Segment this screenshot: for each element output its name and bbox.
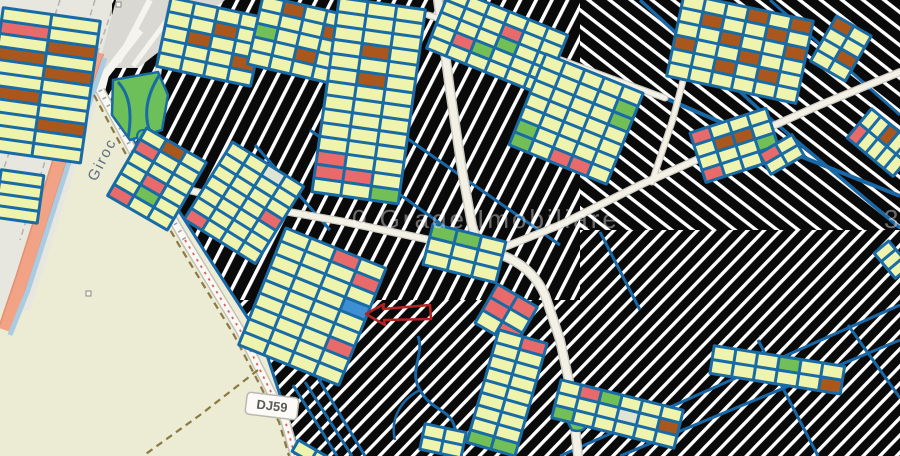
parcel-block[interactable] — [0, 168, 46, 225]
watermark-text-partial: 3 — [884, 204, 900, 234]
map-viewport[interactable]: DJ59 Giroc 0 Grade Imobiliare 3 — [0, 0, 900, 456]
watermark-text: 0 Grade Imobiliare — [352, 204, 620, 234]
map-canvas[interactable]: DJ59 Giroc 0 Grade Imobiliare 3 — [0, 0, 900, 456]
